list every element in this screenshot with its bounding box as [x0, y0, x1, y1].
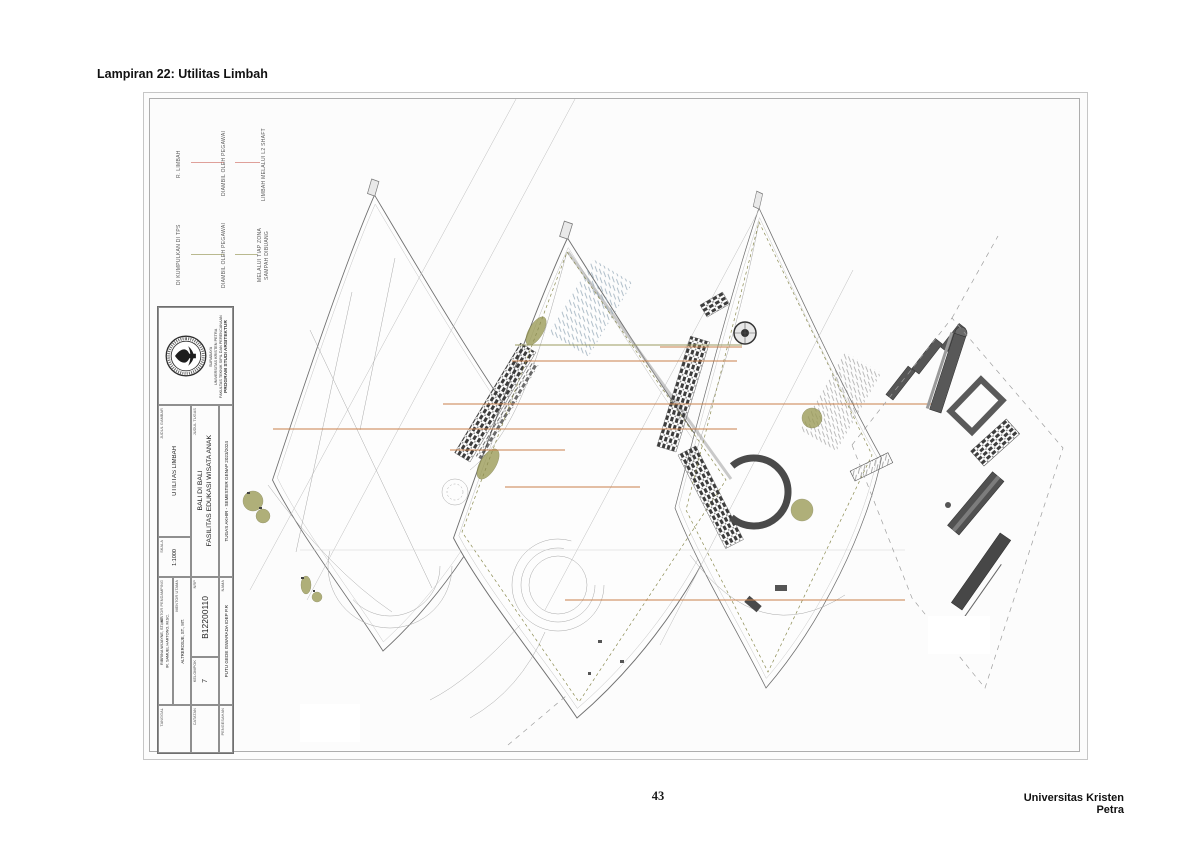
flow-limbah-connector-1: [191, 162, 224, 163]
institution-name: PROGRAM STUDI ARSITEKTUR FAKULTAS TEKNIK…: [209, 310, 231, 404]
white-patch: [928, 616, 990, 654]
flow-sampah-connector-2: [235, 254, 257, 255]
date-cell: TANGGAL: [158, 705, 191, 753]
approval-cell: PENGESAHAN: [219, 705, 233, 753]
flow-limbah-step-1-label: R. LIMBAH: [176, 138, 182, 190]
main-mentor-cell: MENTOR UTAMA ALTREROSJE, ST., MT.: [173, 577, 191, 705]
title-block: PROGRAM STUDI ARSITEKTUR FAKULTAS TEKNIK…: [157, 306, 234, 754]
white-patch: [300, 704, 360, 742]
project-title-label: JUDUL TUGAS: [193, 408, 197, 435]
flow-limbah-step-3-label: LIMBAH MELALUI L2 SHAFT: [261, 120, 267, 208]
student-name: PUTU GEDE ISWARADA IDEP P.R: [224, 605, 229, 677]
group-number: 7: [202, 679, 209, 683]
student-name-cell: NAMA PUTU GEDE ISWARADA IDEP P.R: [219, 577, 233, 705]
date-label: TANGGAL: [160, 708, 164, 727]
student-id-cell: NRP B12200110: [191, 577, 219, 657]
student-id-label: NRP: [193, 580, 197, 588]
co-mentor-names: IR. SAMUEL HARTONO, M.SC. RIBRINA WIJAYN…: [160, 614, 171, 668]
project-title: FASILITAS EDUKASI WISATA ANAK BALI DI BA…: [196, 435, 214, 546]
scale-cell: SKALA 1:1000: [158, 537, 191, 577]
scale-label: SKALA: [160, 540, 164, 553]
site-plan-drawing: [150, 99, 1079, 751]
course-title: TUGAS AKHIR - SEMESTER GENAP 2023/2024: [224, 441, 229, 542]
notes-label: CATATAN: [193, 708, 197, 725]
flow-sampah-step-3-label: SAMPAH DIBUANG MELALUI TIAP ZONA: [256, 216, 271, 294]
sheet-title-cell: JUDUL GAMBAR UTILITAS LIMBAH: [158, 405, 191, 537]
course-cell: TUGAS AKHIR - SEMESTER GENAP 2023/2024: [219, 405, 233, 577]
flow-limbah-step-2-label: DIAMBIL OLEH PEGAWAI: [221, 126, 227, 200]
flow-sampah-connector-1: [191, 254, 224, 255]
footer-university-name: Universitas Kristen Petra: [996, 792, 1124, 816]
scale-value: 1:1000: [172, 549, 178, 566]
student-name-label: NAMA: [221, 580, 225, 591]
main-mentor-label: MENTOR UTAMA: [175, 580, 179, 612]
flow-sampah-step-1-label: DI KUMPULKAN DI TPS: [176, 220, 182, 290]
title-block-logo-cell: PROGRAM STUDI ARSITEKTUR FAKULTAS TEKNIK…: [158, 307, 233, 405]
flow-sampah-step-2-label: DIAMBIL OLEH PEGAWAI: [221, 218, 227, 292]
appendix-heading: Lampiran 22: Utilitas Limbah: [97, 67, 268, 81]
approval-label: PENGESAHAN: [221, 708, 225, 735]
flow-limbah-connector-2: [235, 162, 260, 163]
project-title-cell: JUDUL TUGAS FASILITAS EDUKASI WISATA ANA…: [191, 405, 219, 577]
sheet-title-label: JUDUL GAMBAR: [160, 408, 164, 439]
group-label: KELOMPOK: [193, 660, 197, 682]
site-plan-level-3: [675, 191, 882, 688]
notes-cell: CATATAN: [191, 705, 219, 753]
university-seal-icon: [164, 334, 208, 378]
co-mentor-cell: MENTOR PENDAMPING IR. SAMUEL HARTONO, M.…: [158, 577, 173, 705]
student-id: B12200110: [200, 596, 210, 639]
sheet-title: UTILITAS LIMBAH: [172, 446, 178, 496]
page-number: 43: [643, 789, 673, 804]
main-mentor-name: ALTREROSJE, ST., MT.: [180, 619, 185, 664]
group-cell: KELOMPOK 7: [191, 657, 219, 705]
